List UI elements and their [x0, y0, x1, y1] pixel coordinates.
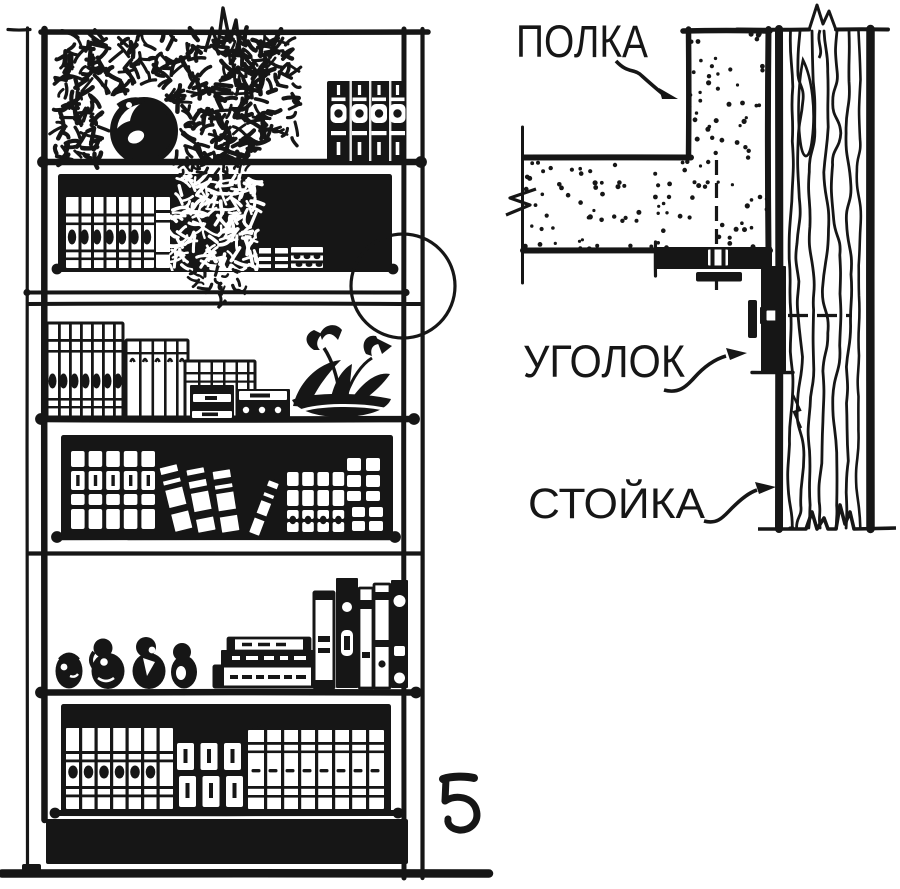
svg-text:УГОЛОК: УГОЛОК — [523, 336, 685, 387]
svg-text:ПОЛКА: ПОЛКА — [516, 16, 648, 67]
svg-text:СТОЙКА: СТОЙКА — [528, 479, 705, 528]
